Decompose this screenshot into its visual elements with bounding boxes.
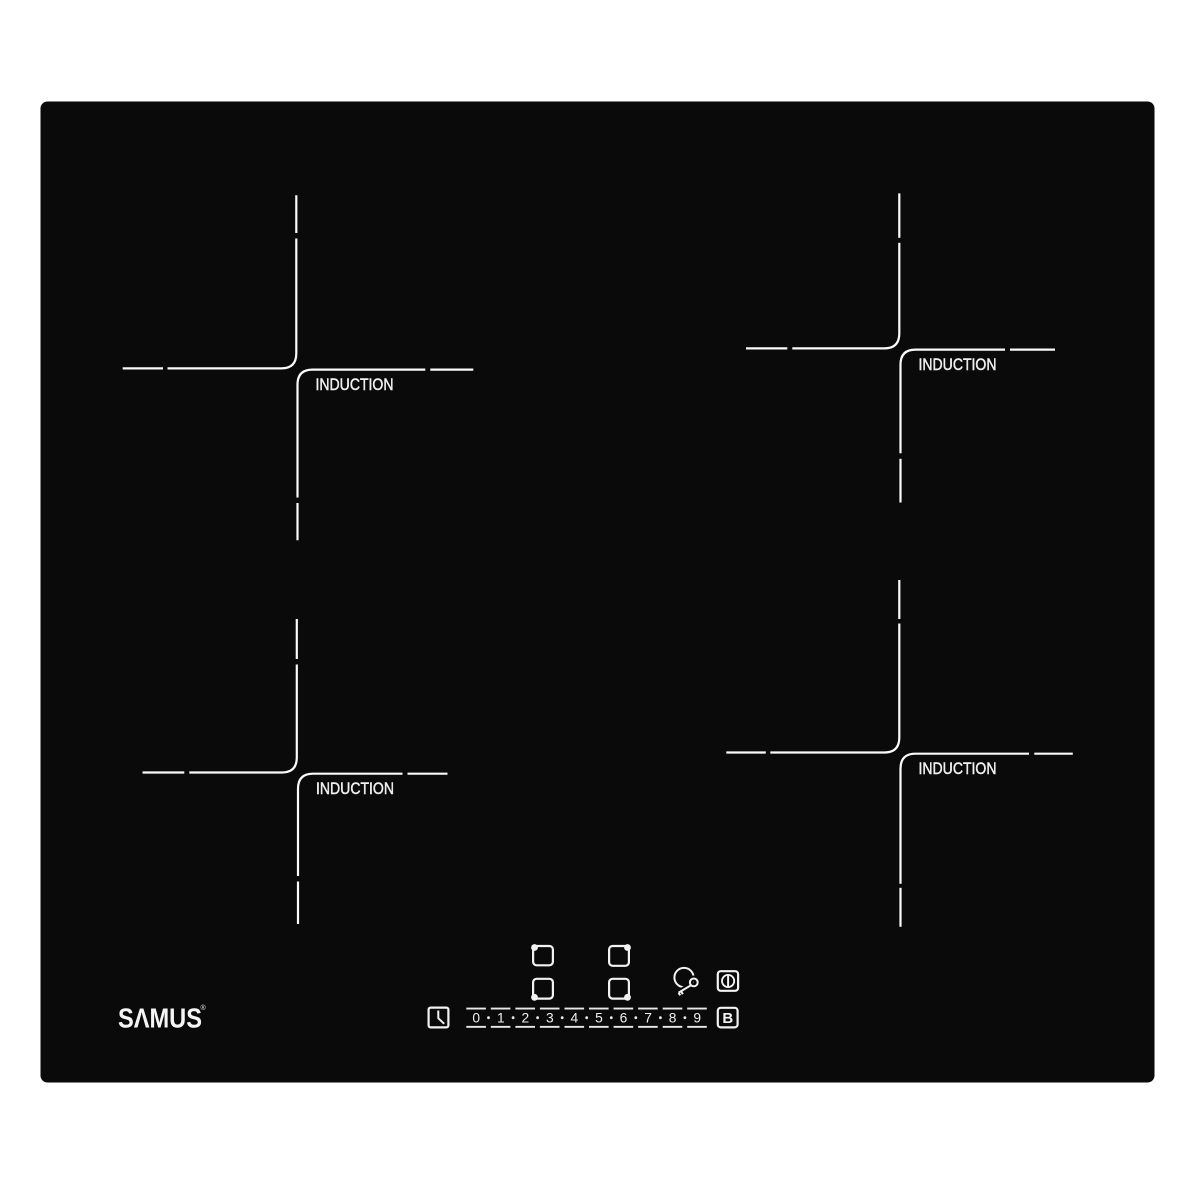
svg-text:6: 6 <box>620 1011 628 1026</box>
svg-text:2: 2 <box>521 1011 529 1026</box>
svg-text:8: 8 <box>669 1011 677 1026</box>
svg-text:INDUCTION: INDUCTION <box>919 356 997 374</box>
svg-text:®: ® <box>201 1004 207 1012</box>
svg-text:B: B <box>722 1010 733 1027</box>
svg-text:4: 4 <box>571 1011 579 1026</box>
svg-text:0: 0 <box>472 1011 480 1026</box>
svg-text:SΛMUS: SΛMUS <box>118 1003 202 1034</box>
svg-text:INDUCTION: INDUCTION <box>919 760 997 778</box>
svg-text:3: 3 <box>546 1011 554 1026</box>
svg-text:7: 7 <box>644 1011 652 1026</box>
svg-text:INDUCTION: INDUCTION <box>316 780 394 798</box>
svg-text:9: 9 <box>693 1011 701 1026</box>
svg-text:1: 1 <box>497 1011 505 1026</box>
svg-text:INDUCTION: INDUCTION <box>316 376 394 394</box>
svg-text:5: 5 <box>595 1011 603 1026</box>
